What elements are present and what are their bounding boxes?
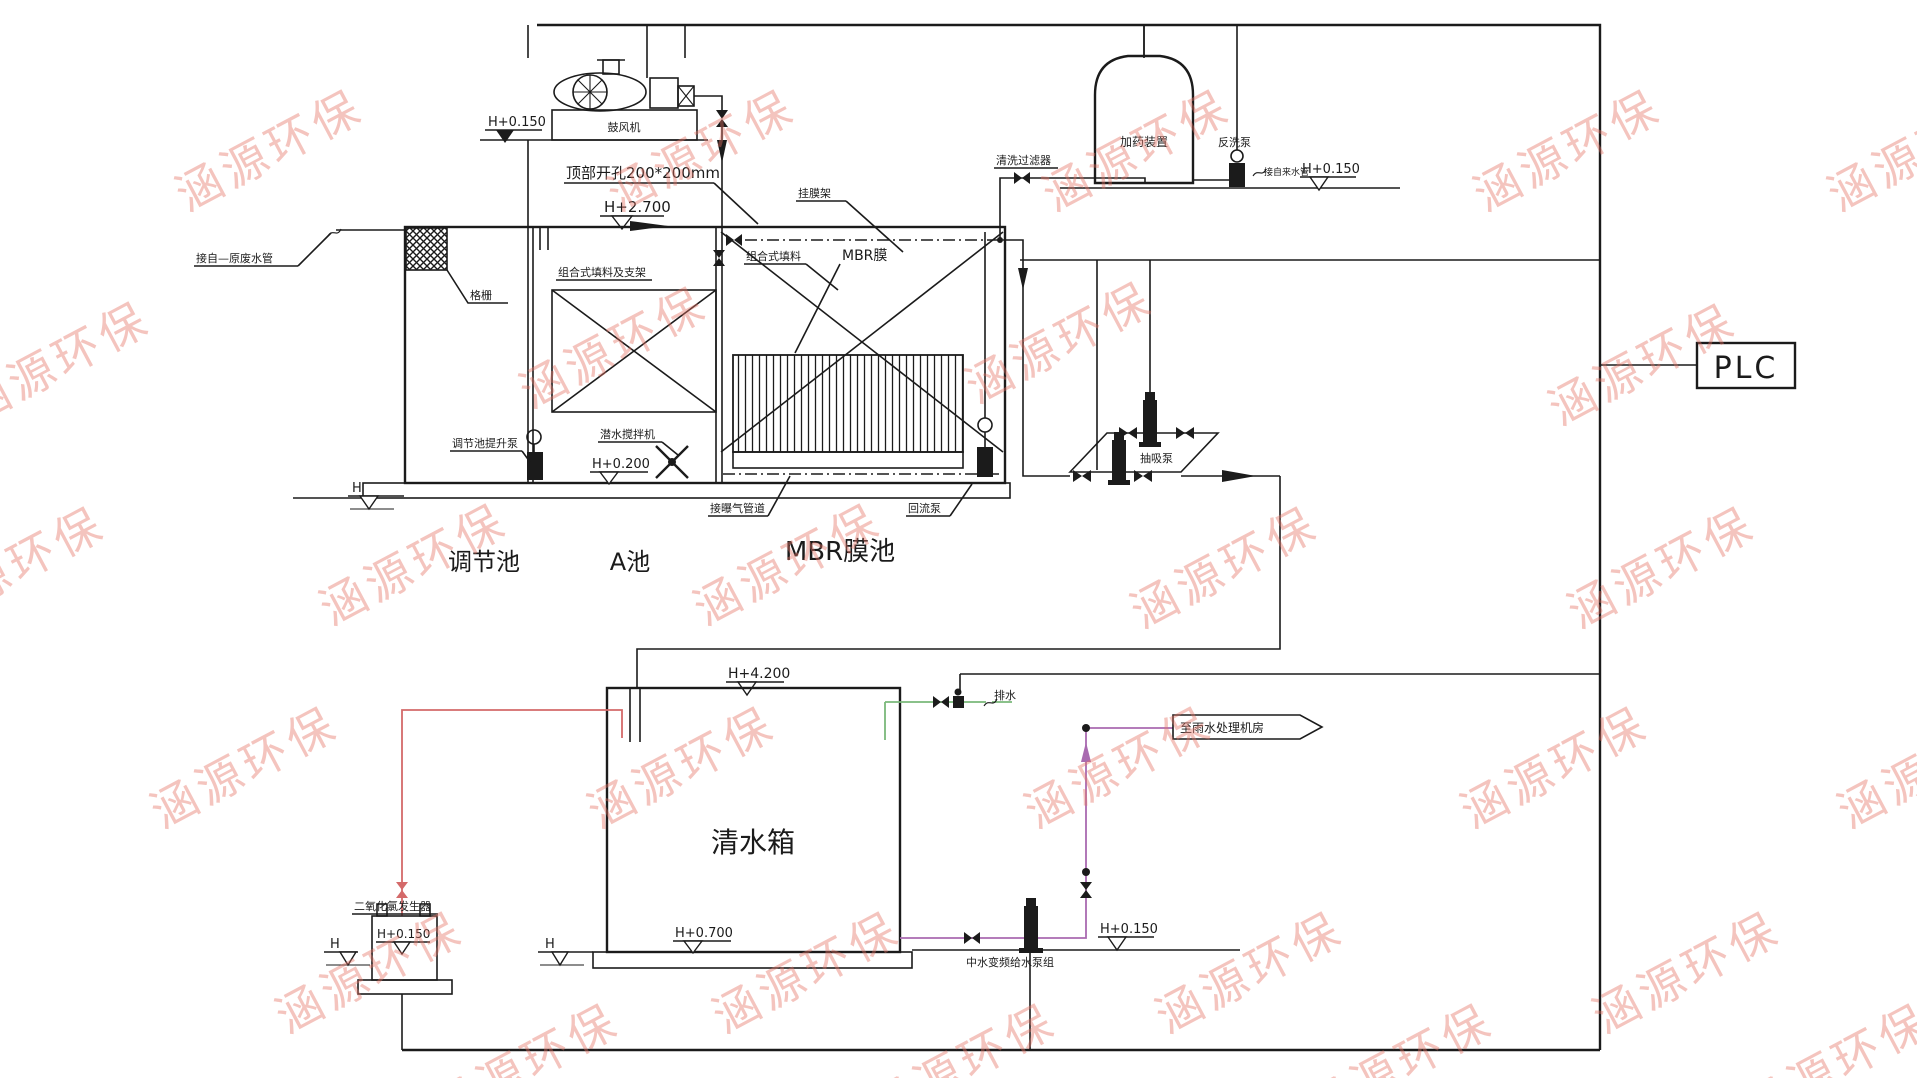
water-pump-group: 中水变频给水泵组 H+0.150 [912,898,1240,1050]
svg-text:H: H [330,937,340,952]
clo2-generator: 二氧化氯发生器 H+0.150 [352,899,452,1050]
lift-pump-label: 调节池提升泵 [452,437,518,450]
mbr-tank-label: MBR膜池 [785,537,895,567]
packing-support-label: 组合式填料及支架 [558,265,646,279]
packing-label: 组合式填料 [746,249,801,263]
ground-datum-left: H [324,937,370,965]
blower-elevation: H+0.150 [488,115,546,130]
tap-water-connection: 接自来水管 H+0.150 [1253,162,1360,190]
clo2-dosing-pipe [396,710,622,916]
tank-datum: H [348,481,404,509]
return-pump-label: 回流泵 [908,501,941,515]
screen-label: 格栅 [470,288,492,302]
regulation-tank-label: 调节池 [448,548,520,576]
cleaning-filter: 清洗过滤器 [994,154,1145,243]
a-tank-label: A池 [610,548,650,576]
process-diagram: PLC 鼓风机 H+0.150 顶部开孔200*200mm H+2.700 [0,0,1917,1078]
rainwater-banner-label: 至雨水处理机房 [1180,720,1264,735]
permeate-flow-arrow [1018,268,1028,290]
top-opening-label: 顶部开孔200*200mm [566,164,720,182]
drain-fittings: 排水 [933,674,1016,708]
process-diagram-sheet: PLC 鼓风机 H+0.150 顶部开孔200*200mm H+2.700 [0,0,1917,1078]
clean-tank-label: 清水箱 [711,826,795,859]
plc-controller: PLC [1600,343,1795,388]
suction-pump-skid: 抽吸泵 [637,240,1600,688]
mbr-membrane-label: MBR膜 [842,248,887,264]
tank-drain-line [885,702,1012,740]
mixer-label: 潜水搅拌机 [600,427,655,441]
svg-text:H+2.700: H+2.700 [604,198,671,216]
air-flow-arrow [717,140,727,163]
lift-pump: 调节池提升泵 [450,430,543,480]
suction-pump-label: 抽吸泵 [1140,451,1173,465]
svg-text:接曝气管道: 接曝气管道 [710,501,765,515]
svg-text:H+0.200: H+0.200 [592,457,650,472]
bar-screen: 格栅 [406,228,508,303]
svg-text:H+0.150: H+0.150 [1100,922,1158,937]
backwash-pump-label: 反洗泵 [1218,136,1251,149]
suction-header-valves [1073,427,1194,482]
dosing-device: 加药装置 [1095,25,1193,183]
svg-text:H: H [352,481,362,496]
cleaning-filter-label: 清洗过滤器 [996,154,1051,167]
membrane-zone: 组合式填料 MBR膜 挂膜架 [721,186,1005,474]
discharge-flow-arrow [1222,470,1256,482]
svg-text:H+0.150: H+0.150 [1302,162,1360,177]
flow-arrow-right [630,221,668,231]
ground-datum-mid: H [538,937,593,965]
svg-text:H+0.700: H+0.700 [675,926,733,941]
plc-label: PLC [1714,351,1779,386]
dosing-device-label: 加药装置 [1120,135,1168,149]
mixer-elevation: H+0.200 [590,457,650,484]
packing-frame: 组合式填料及支架 [552,265,716,412]
water-pump-group-label: 中水变频给水泵组 [966,955,1054,969]
clean-water-tank: H+4.200 清水箱 H+0.700 [593,666,912,968]
drain-label: 排水 [994,688,1016,702]
blower-label: 鼓风机 [608,120,641,134]
membrane-cassette [733,355,963,452]
svg-text:H+4.200: H+4.200 [728,666,790,682]
influent-pipe: 接自—原废水管 [194,229,405,266]
membrane-rack-label: 挂膜架 [798,186,831,200]
rainwater-banner: 至雨水处理机房 [1173,715,1322,739]
influent-label: 接自—原废水管 [196,251,273,265]
svg-text:H+0.150: H+0.150 [377,927,430,941]
svg-text:H: H [545,937,555,952]
